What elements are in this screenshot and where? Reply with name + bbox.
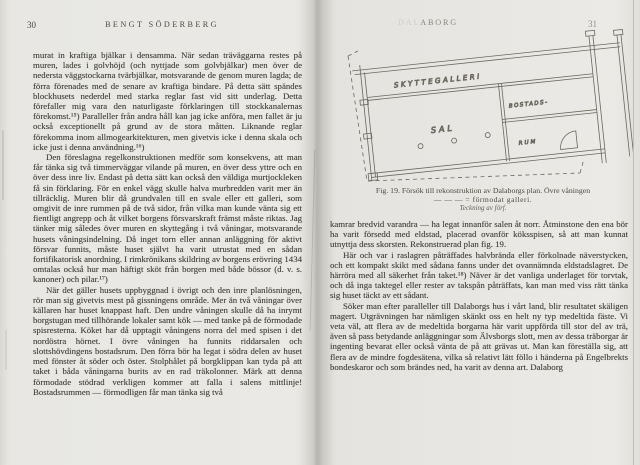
figure-caption-credit: Teckning av förf. (334, 204, 632, 213)
figure-label-bostads: BOSTADS- (509, 100, 549, 110)
floor-plan-drawing: SKYTTEGALLERI SAL BOSTADS- RUM (337, 27, 633, 185)
paragraph: Den föreslagna regelkonstruktionen medfö… (33, 152, 302, 285)
wall-post (613, 29, 622, 35)
plan-walls: SKYTTEGALLERI SAL BOSTADS- RUM (351, 27, 633, 185)
running-head-visible-part: ABORG (420, 18, 458, 27)
figure-caption: Fig. 19. Försök till rekonstruktion av D… (334, 186, 632, 213)
column-dots (417, 132, 491, 149)
door-arc (559, 131, 578, 150)
figure-label-sal: SAL (430, 123, 455, 134)
figure-caption-legend: — — — = förmodat galleri. (334, 195, 632, 204)
floor-plan-figure: SKYTTEGALLERI SAL BOSTADS- RUM (337, 27, 633, 185)
left-running-head: BENGT SÖDERBERG (62, 20, 262, 29)
paragraph: kamrar bredvid varandra — ha legat innan… (330, 219, 628, 250)
scan-artifact (5, 330, 7, 370)
right-running-head: DALABORG (378, 18, 478, 27)
left-page-text: murat in kraftiga bjälkar i densamma. Nä… (33, 50, 302, 397)
scan-artifact (2, 130, 4, 200)
figure-caption-line1: Fig. 19. Försök till rekonstruktion av D… (334, 186, 632, 195)
paragraph: murat in kraftiga bjälkar i densamma. Nä… (33, 50, 302, 152)
paragraph: Här och var i raslagren påträffades halv… (330, 250, 628, 301)
figure-label-rum: RUM (519, 139, 538, 147)
page-gutter-shadow (300, 0, 334, 465)
left-page-number: 30 (27, 20, 36, 30)
running-head-faded-part: DAL (398, 18, 420, 27)
paragraph: När det gäller husets uppbyggnad i övrig… (33, 285, 302, 397)
book-scan: 30 BENGT SÖDERBERG murat in kraftiga bjä… (0, 0, 640, 465)
wall-post (585, 30, 594, 36)
scan-artifact (633, 0, 634, 465)
paragraph: Söker man efter paralleller till Dalabor… (330, 301, 628, 372)
gallery-dashed-outline (348, 51, 584, 181)
right-page-text: kamrar bredvid varandra — ha legat innan… (330, 219, 628, 372)
scan-artifact (310, 150, 316, 330)
